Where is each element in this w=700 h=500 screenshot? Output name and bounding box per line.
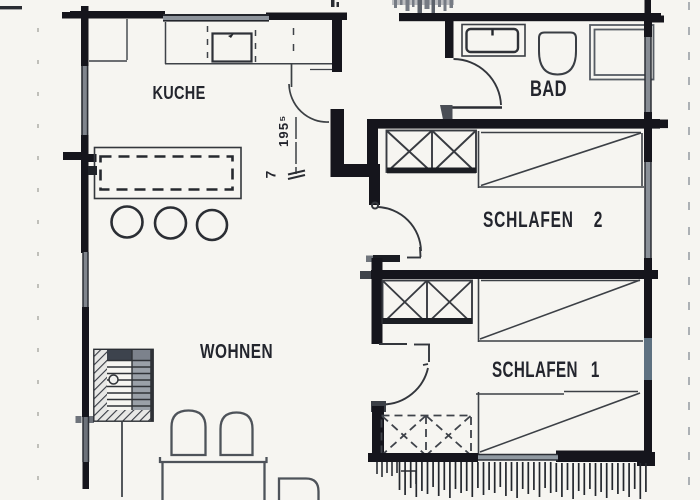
svg-text:BAD: BAD xyxy=(530,78,567,102)
svg-text:7: 7 xyxy=(263,171,279,179)
svg-text:WOHNEN: WOHNEN xyxy=(200,339,273,363)
svg-text:195⁵: 195⁵ xyxy=(276,114,291,147)
svg-text:KUCHE: KUCHE xyxy=(153,84,206,104)
